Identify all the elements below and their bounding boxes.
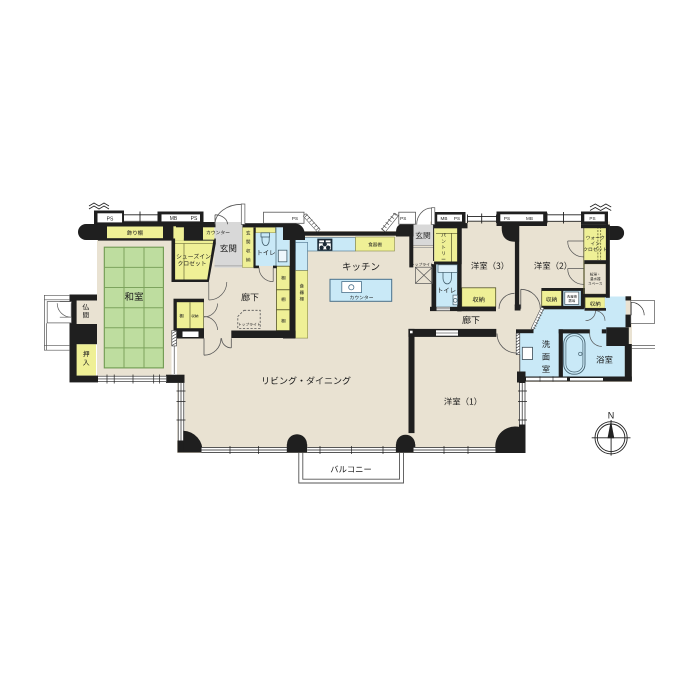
svg-text:MB: MB bbox=[441, 216, 448, 221]
svg-text:PS: PS bbox=[454, 216, 460, 221]
svg-text:PS: PS bbox=[191, 216, 198, 222]
svg-text:PS: PS bbox=[107, 217, 114, 223]
svg-text:PS: PS bbox=[400, 216, 406, 221]
svg-text:PS: PS bbox=[504, 216, 510, 221]
svg-text:N: N bbox=[608, 410, 615, 420]
svg-text:PS: PS bbox=[589, 216, 595, 221]
svg-text:PS: PS bbox=[292, 216, 298, 221]
svg-text:MB: MB bbox=[526, 216, 533, 221]
svg-text:MB: MB bbox=[170, 216, 178, 222]
